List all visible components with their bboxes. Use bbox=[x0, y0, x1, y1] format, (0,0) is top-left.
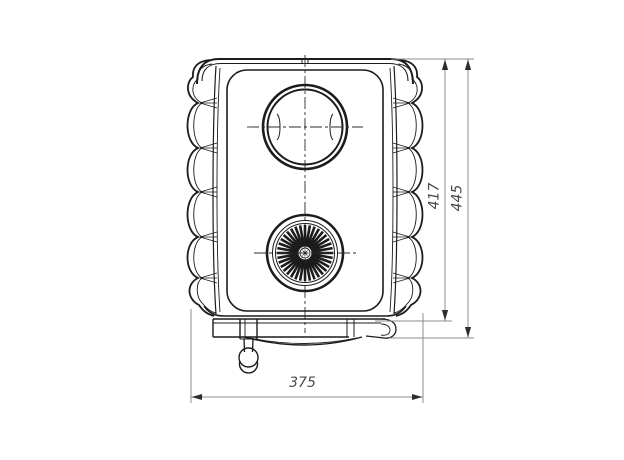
faucet-ball bbox=[239, 348, 258, 367]
ribbed-side-right bbox=[393, 60, 423, 316]
dim-label-375: 375 bbox=[289, 375, 316, 391]
dim-445: 445 bbox=[450, 59, 472, 338]
dim-label-417: 417 bbox=[427, 183, 443, 210]
dim-label-445: 445 bbox=[450, 185, 466, 212]
dim-417: 417 bbox=[427, 59, 449, 321]
drawing-canvas: 417 445 375 bbox=[0, 0, 624, 460]
technical-drawing: 417 445 375 bbox=[0, 0, 624, 460]
drain-faucet bbox=[239, 319, 258, 373]
tank-bottom-arc bbox=[244, 337, 362, 345]
control-knob bbox=[254, 215, 356, 291]
faucet-stem bbox=[244, 339, 253, 352]
ribbed-side-left bbox=[188, 60, 218, 316]
dimension-annotations: 417 445 375 bbox=[191, 59, 474, 403]
rib-fins bbox=[200, 98, 217, 283]
dim-375: 375 bbox=[191, 375, 423, 400]
extension-lines bbox=[191, 59, 474, 403]
